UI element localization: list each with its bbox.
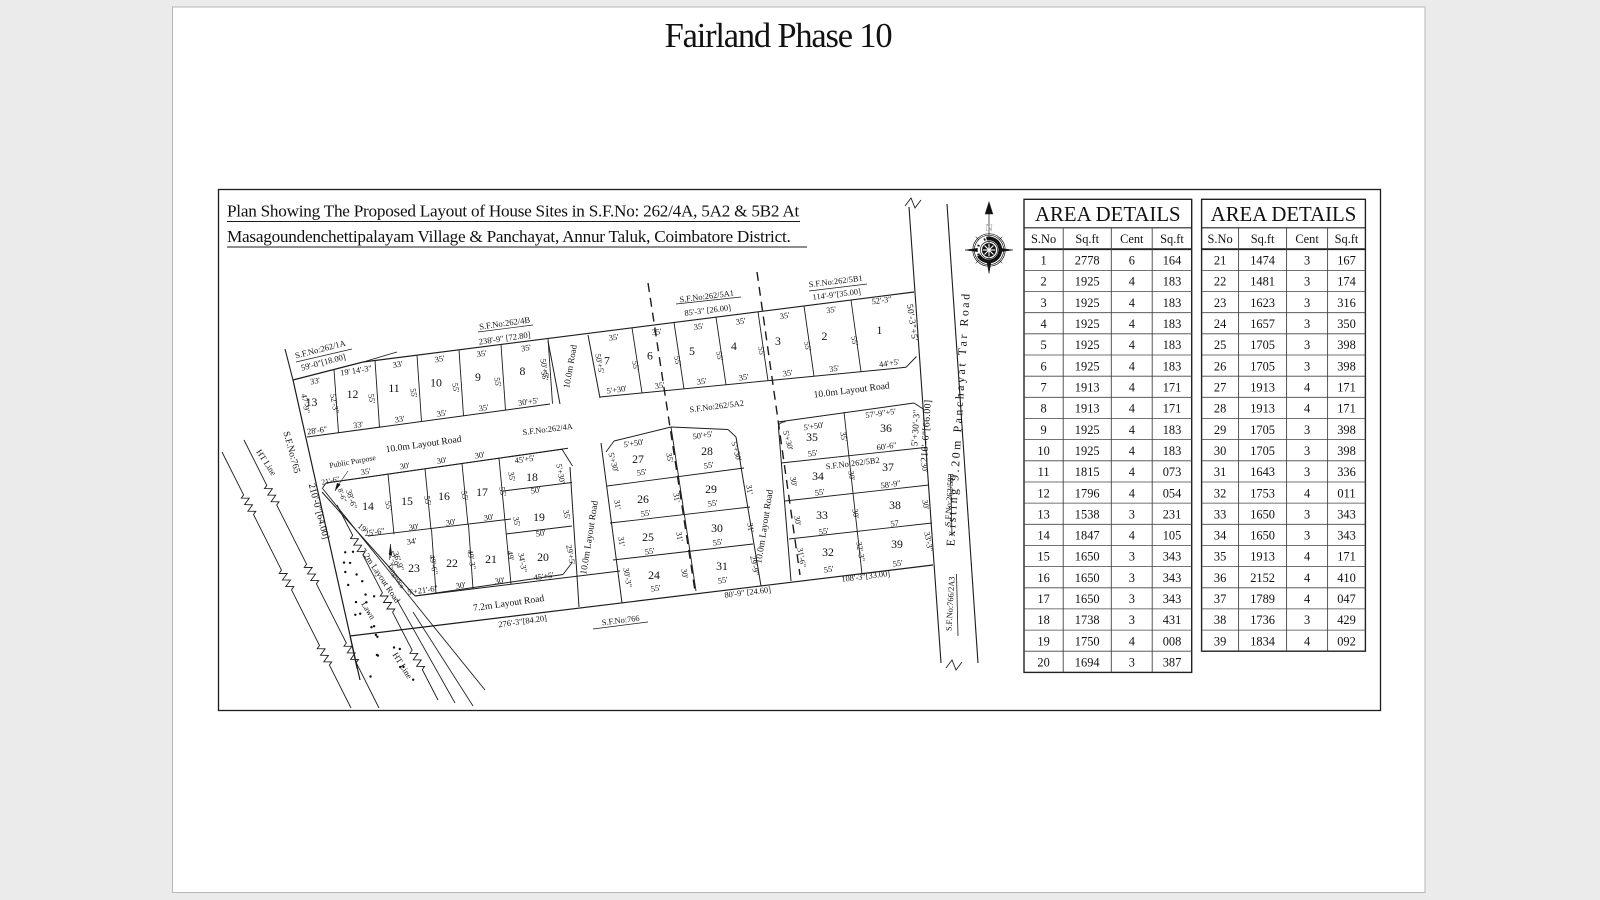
svg-text:171: 171: [1337, 381, 1356, 395]
svg-text:50': 50': [535, 528, 547, 538]
svg-text:31: 31: [1214, 465, 1226, 479]
svg-text:8: 8: [1040, 402, 1046, 416]
svg-text:28: 28: [1214, 402, 1226, 416]
svg-text:1925: 1925: [1075, 275, 1100, 289]
svg-text:4: 4: [731, 339, 737, 353]
svg-text:Fairland Phase 10: Fairland Phase 10: [665, 17, 892, 55]
svg-text:20: 20: [537, 550, 549, 564]
svg-text:35': 35': [434, 354, 446, 365]
svg-text:398: 398: [1337, 338, 1356, 352]
svg-text:33': 33': [353, 420, 365, 430]
svg-text:N: N: [985, 223, 993, 234]
svg-text:2: 2: [822, 329, 828, 343]
svg-text:1925: 1925: [1075, 338, 1100, 352]
svg-text:26: 26: [1214, 359, 1226, 373]
svg-text:3: 3: [1304, 529, 1310, 543]
svg-text:343: 343: [1163, 571, 1182, 585]
svg-text:1789: 1789: [1250, 592, 1275, 606]
svg-text:22: 22: [1214, 275, 1226, 289]
svg-text:2152: 2152: [1250, 571, 1275, 585]
svg-text:4: 4: [1304, 550, 1310, 564]
svg-text:4: 4: [1304, 486, 1310, 500]
svg-text:336: 336: [1337, 465, 1356, 479]
svg-text:1705: 1705: [1250, 338, 1275, 352]
svg-text:3: 3: [1304, 613, 1310, 627]
svg-text:054: 054: [1163, 486, 1182, 500]
svg-text:29: 29: [705, 482, 717, 496]
svg-text:4: 4: [1040, 317, 1046, 331]
svg-text:55': 55': [707, 498, 719, 508]
svg-text:13: 13: [1037, 507, 1049, 521]
svg-text:25: 25: [642, 530, 654, 544]
svg-text:35': 35': [478, 403, 490, 413]
svg-text:1750: 1750: [1075, 634, 1100, 648]
svg-text:431: 431: [1163, 613, 1182, 627]
svg-text:30': 30': [483, 512, 495, 522]
svg-text:171: 171: [1337, 550, 1356, 564]
svg-text:1913: 1913: [1075, 402, 1100, 416]
svg-text:4: 4: [1304, 381, 1310, 395]
svg-text:S.No: S.No: [1208, 232, 1233, 246]
svg-text:35': 35': [476, 349, 488, 360]
svg-text:4: 4: [1304, 571, 1310, 585]
svg-text:183: 183: [1163, 359, 1182, 373]
svg-text:Sq.ft: Sq.ft: [1335, 232, 1359, 246]
svg-text:3: 3: [1304, 507, 1310, 521]
svg-text:343: 343: [1163, 592, 1182, 606]
svg-text:35': 35': [360, 467, 372, 477]
svg-text:183: 183: [1163, 423, 1182, 437]
svg-text:55': 55': [807, 448, 819, 458]
svg-text:2: 2: [1040, 275, 1046, 289]
svg-text:29: 29: [1214, 423, 1226, 437]
svg-text:30': 30': [436, 456, 448, 466]
svg-text:5: 5: [689, 344, 695, 358]
svg-text:1925: 1925: [1075, 359, 1100, 373]
svg-text:Plan Showing The Proposed Layo: Plan Showing The Proposed Layout of Hous…: [227, 202, 799, 221]
svg-text:35': 35': [826, 305, 838, 315]
svg-text:10: 10: [1037, 444, 1049, 458]
svg-text:11: 11: [1038, 465, 1050, 479]
svg-text:S.No: S.No: [1031, 232, 1056, 246]
svg-text:16: 16: [1037, 571, 1049, 585]
svg-text:19: 19: [1037, 634, 1049, 648]
svg-text:32: 32: [1214, 486, 1226, 500]
svg-text:34: 34: [812, 469, 824, 483]
svg-text:1694: 1694: [1075, 656, 1100, 670]
svg-text:4: 4: [1129, 359, 1135, 373]
svg-text:55': 55': [823, 564, 835, 574]
svg-text:24: 24: [1214, 317, 1226, 331]
svg-text:15: 15: [1037, 550, 1049, 564]
svg-text:55': 55': [703, 460, 715, 470]
svg-text:167: 167: [1337, 254, 1356, 268]
svg-text:343: 343: [1337, 529, 1356, 543]
svg-text:17: 17: [1037, 592, 1049, 606]
svg-text:6: 6: [647, 349, 653, 363]
svg-text:316: 316: [1337, 296, 1356, 310]
svg-text:57: 57: [890, 518, 900, 528]
svg-text:14: 14: [362, 499, 374, 513]
svg-text:23: 23: [1214, 296, 1226, 310]
svg-text:4: 4: [1304, 402, 1310, 416]
svg-text:105: 105: [1163, 529, 1182, 543]
svg-text:6: 6: [1040, 359, 1046, 373]
svg-text:1738: 1738: [1075, 613, 1100, 627]
svg-text:1736: 1736: [1250, 613, 1275, 627]
svg-text:011: 011: [1337, 486, 1355, 500]
svg-text:31: 31: [716, 559, 728, 573]
svg-text:17: 17: [476, 485, 488, 499]
svg-text:4: 4: [1129, 317, 1135, 331]
svg-text:3: 3: [1129, 592, 1135, 606]
svg-text:047: 047: [1337, 592, 1356, 606]
svg-text:33': 33': [392, 359, 404, 370]
svg-text:4: 4: [1304, 634, 1310, 648]
svg-text:183: 183: [1163, 296, 1182, 310]
svg-text:37: 37: [882, 460, 894, 474]
svg-text:30': 30': [494, 576, 506, 586]
svg-text:1913: 1913: [1250, 381, 1275, 395]
svg-text:3: 3: [1304, 423, 1310, 437]
svg-text:1847: 1847: [1075, 529, 1100, 543]
svg-text:171: 171: [1163, 402, 1182, 416]
svg-text:35: 35: [1214, 550, 1226, 564]
svg-text:1834: 1834: [1250, 634, 1275, 648]
svg-text:19: 19: [533, 510, 545, 524]
svg-text:183: 183: [1163, 338, 1182, 352]
svg-text:183: 183: [1163, 275, 1182, 289]
svg-text:35': 35': [829, 364, 841, 374]
svg-text:171: 171: [1337, 402, 1356, 416]
svg-text:3: 3: [1304, 317, 1310, 331]
svg-text:50': 50': [530, 485, 542, 495]
svg-text:171: 171: [1163, 381, 1182, 395]
svg-text:3: 3: [1304, 465, 1310, 479]
svg-text:37: 37: [1214, 592, 1226, 606]
svg-text:15: 15: [401, 494, 413, 508]
svg-text:35': 35': [696, 376, 708, 386]
svg-text:5: 5: [1040, 338, 1046, 352]
svg-text:28: 28: [701, 444, 713, 458]
svg-text:7: 7: [604, 353, 610, 367]
svg-text:3: 3: [1129, 656, 1135, 670]
svg-text:38: 38: [889, 498, 901, 512]
svg-text:27: 27: [1214, 381, 1226, 395]
svg-text:4: 4: [1129, 338, 1135, 352]
svg-text:38: 38: [1214, 613, 1226, 627]
svg-text:55': 55': [814, 487, 826, 497]
svg-text:55': 55': [650, 583, 662, 593]
svg-text:350: 350: [1337, 317, 1356, 331]
svg-text:1643: 1643: [1250, 465, 1275, 479]
svg-text:18: 18: [1037, 613, 1049, 627]
svg-text:35': 35': [779, 311, 791, 321]
svg-text:073: 073: [1163, 465, 1182, 479]
svg-text:008: 008: [1163, 634, 1182, 648]
svg-text:35': 35': [782, 368, 794, 378]
svg-text:4: 4: [1304, 592, 1310, 606]
svg-text:1815: 1815: [1075, 465, 1100, 479]
svg-text:35': 35': [436, 409, 448, 419]
svg-text:092: 092: [1337, 634, 1356, 648]
svg-text:11: 11: [388, 381, 399, 395]
svg-text:6: 6: [1129, 254, 1135, 268]
svg-text:1: 1: [877, 323, 883, 337]
svg-text:1650: 1650: [1075, 550, 1100, 564]
svg-text:3: 3: [1129, 571, 1135, 585]
svg-text:1913: 1913: [1250, 402, 1275, 416]
svg-text:343: 343: [1163, 550, 1182, 564]
svg-text:1650: 1650: [1075, 592, 1100, 606]
svg-text:18: 18: [526, 470, 538, 484]
svg-text:30: 30: [1214, 444, 1226, 458]
svg-text:4: 4: [1129, 486, 1135, 500]
svg-text:55': 55': [712, 537, 724, 547]
svg-text:3: 3: [1129, 507, 1135, 521]
svg-text:9: 9: [1040, 423, 1046, 437]
svg-text:4: 4: [1129, 296, 1135, 310]
svg-text:398: 398: [1337, 359, 1356, 373]
svg-text:35': 35': [693, 322, 705, 332]
svg-text:3: 3: [1040, 296, 1046, 310]
svg-text:33': 33': [310, 376, 322, 387]
svg-text:22: 22: [446, 556, 458, 570]
svg-text:3: 3: [1129, 613, 1135, 627]
svg-text:30': 30': [455, 581, 467, 591]
svg-text:1913: 1913: [1075, 381, 1100, 395]
svg-text:3: 3: [1304, 254, 1310, 268]
svg-text:21: 21: [485, 552, 497, 566]
svg-text:1650: 1650: [1075, 571, 1100, 585]
svg-text:1705: 1705: [1250, 359, 1275, 373]
svg-text:387: 387: [1163, 656, 1182, 670]
svg-text:1925: 1925: [1075, 423, 1100, 437]
svg-text:410: 410: [1337, 571, 1356, 585]
svg-text:164: 164: [1163, 254, 1182, 268]
svg-text:183: 183: [1163, 444, 1182, 458]
svg-text:9: 9: [475, 370, 481, 384]
svg-text:1623: 1623: [1250, 296, 1275, 310]
svg-text:35': 35': [521, 343, 533, 354]
svg-text:14: 14: [1037, 529, 1049, 543]
svg-text:35: 35: [806, 430, 818, 444]
svg-text:4: 4: [1129, 465, 1135, 479]
svg-text:55': 55': [644, 546, 656, 556]
svg-text:32: 32: [822, 545, 834, 559]
svg-text:Sq.ft: Sq.ft: [1251, 232, 1275, 246]
svg-text:Cent: Cent: [1120, 232, 1144, 246]
svg-text:55': 55': [892, 558, 904, 568]
svg-text:174: 174: [1337, 275, 1356, 289]
svg-text:2778: 2778: [1075, 254, 1100, 268]
svg-text:30': 30': [474, 450, 486, 460]
svg-text:55': 55': [818, 526, 830, 536]
svg-text:4: 4: [1129, 402, 1135, 416]
svg-text:183: 183: [1163, 317, 1182, 331]
svg-text:25: 25: [1214, 338, 1226, 352]
svg-text:8: 8: [520, 364, 526, 378]
svg-text:26: 26: [637, 492, 649, 506]
svg-text:24: 24: [648, 568, 660, 582]
svg-text:1705: 1705: [1250, 423, 1275, 437]
svg-text:1753: 1753: [1250, 486, 1275, 500]
svg-text:33: 33: [816, 508, 828, 522]
svg-text:4: 4: [1129, 381, 1135, 395]
svg-text:3: 3: [1304, 296, 1310, 310]
svg-text:35': 35': [608, 332, 620, 342]
svg-text:55': 55': [640, 508, 652, 518]
svg-text:4: 4: [1129, 634, 1135, 648]
svg-text:1: 1: [1040, 254, 1046, 268]
svg-text:30': 30': [445, 517, 457, 527]
svg-text:30: 30: [711, 521, 723, 535]
svg-text:7: 7: [1040, 381, 1046, 395]
svg-text:4: 4: [1129, 275, 1135, 289]
svg-text:Sq.ft: Sq.ft: [1075, 232, 1099, 246]
svg-text:3: 3: [1304, 275, 1310, 289]
svg-text:21: 21: [1214, 254, 1226, 268]
svg-text:33': 33': [394, 414, 406, 424]
svg-text:30': 30': [408, 522, 420, 532]
svg-text:1705: 1705: [1250, 444, 1275, 458]
svg-text:398: 398: [1337, 423, 1356, 437]
svg-text:55': 55': [636, 467, 648, 477]
svg-text:4: 4: [1129, 529, 1135, 543]
svg-text:4: 4: [1129, 444, 1135, 458]
svg-text:35': 35': [651, 327, 663, 337]
svg-text:1538: 1538: [1075, 507, 1100, 521]
svg-text:30': 30': [399, 461, 411, 471]
svg-text:1796: 1796: [1075, 486, 1100, 500]
svg-text:1650: 1650: [1250, 529, 1275, 543]
svg-text:AREA DETAILS: AREA DETAILS: [1035, 203, 1181, 226]
svg-text:55': 55': [717, 575, 729, 585]
svg-text:1481: 1481: [1250, 275, 1275, 289]
svg-text:AREA DETAILS: AREA DETAILS: [1211, 203, 1357, 226]
svg-text:34': 34': [406, 536, 418, 546]
svg-text:36: 36: [1214, 571, 1226, 585]
svg-text:3: 3: [775, 334, 781, 348]
svg-text:34: 34: [1214, 529, 1226, 543]
svg-text:39: 39: [891, 537, 903, 551]
svg-text:Sq.ft: Sq.ft: [1160, 232, 1184, 246]
svg-text:Masagoundenchettipalayam Villa: Masagoundenchettipalayam Village & Panch…: [227, 227, 791, 246]
svg-text:10: 10: [430, 375, 442, 389]
svg-text:12: 12: [1037, 486, 1049, 500]
svg-text:4: 4: [1129, 423, 1135, 437]
svg-text:Cent: Cent: [1295, 232, 1319, 246]
svg-text:36: 36: [880, 421, 892, 435]
svg-text:1657: 1657: [1250, 317, 1275, 331]
svg-text:343: 343: [1337, 507, 1356, 521]
svg-text:398: 398: [1337, 444, 1356, 458]
svg-text:3: 3: [1304, 338, 1310, 352]
svg-text:1925: 1925: [1075, 296, 1100, 310]
svg-text:35': 35': [735, 316, 747, 326]
svg-text:23: 23: [408, 561, 420, 575]
svg-text:3: 3: [1304, 444, 1310, 458]
svg-text:3: 3: [1129, 550, 1135, 564]
svg-text:27: 27: [632, 452, 644, 466]
svg-text:231: 231: [1163, 507, 1182, 521]
svg-text:35': 35': [738, 372, 750, 382]
svg-text:1925: 1925: [1075, 444, 1100, 458]
svg-text:1474: 1474: [1250, 254, 1275, 268]
svg-text:33: 33: [1214, 507, 1226, 521]
svg-text:429: 429: [1337, 613, 1356, 627]
svg-text:1925: 1925: [1075, 317, 1100, 331]
svg-text:1913: 1913: [1250, 550, 1275, 564]
svg-text:1650: 1650: [1250, 507, 1275, 521]
svg-text:20: 20: [1037, 656, 1049, 670]
svg-text:3: 3: [1304, 359, 1310, 373]
svg-text:39: 39: [1214, 634, 1226, 648]
svg-text:16: 16: [438, 489, 450, 503]
svg-text:12: 12: [347, 387, 359, 401]
